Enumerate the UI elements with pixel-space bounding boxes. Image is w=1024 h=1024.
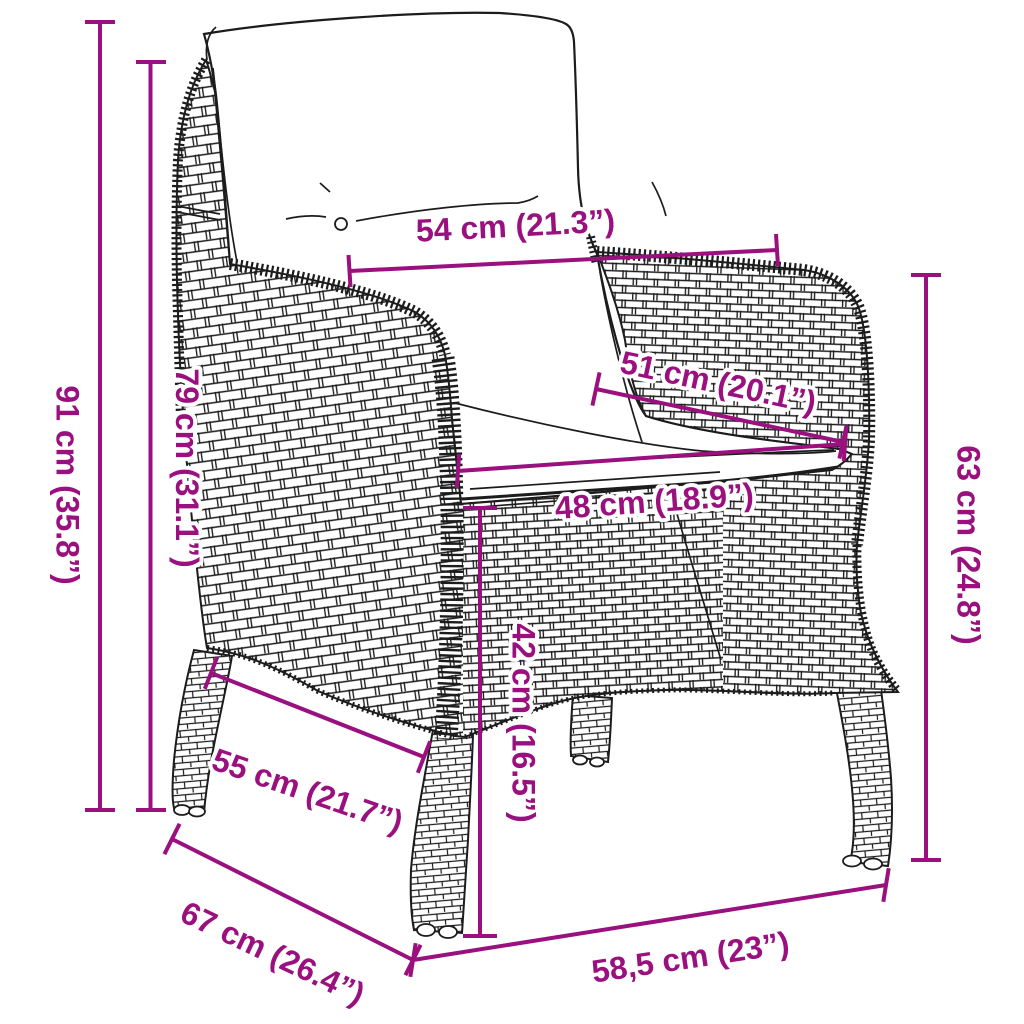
svg-text:91 cm (35.8”): 91 cm (35.8”) <box>50 385 86 584</box>
svg-text:42 cm (16.5”): 42 cm (16.5”) <box>506 623 542 822</box>
svg-text:63 cm (24.8”): 63 cm (24.8”) <box>951 445 987 644</box>
svg-text:79 cm (31.1”): 79 cm (31.1”) <box>169 368 205 567</box>
